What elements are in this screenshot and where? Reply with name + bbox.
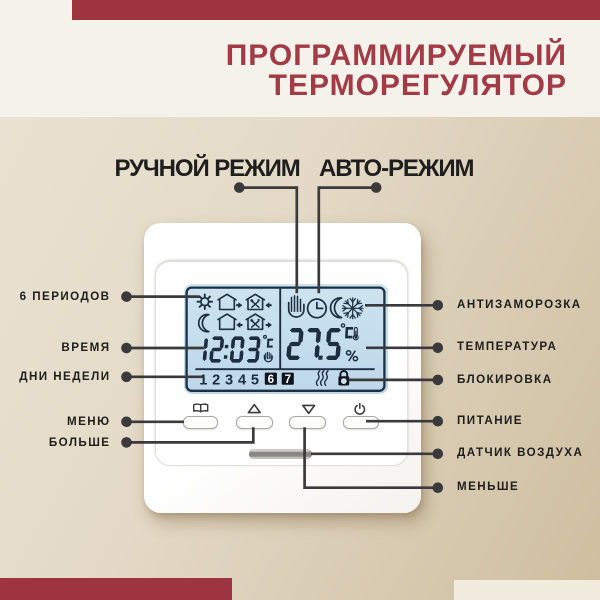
svg-text:3: 3 [225, 372, 233, 388]
svg-text:4: 4 [238, 372, 247, 388]
svg-text:6: 6 [268, 373, 275, 386]
svg-text:1: 1 [199, 372, 207, 388]
svg-text:7: 7 [285, 373, 291, 386]
svg-text:2: 2 [212, 372, 220, 388]
svg-text:5: 5 [251, 372, 259, 388]
